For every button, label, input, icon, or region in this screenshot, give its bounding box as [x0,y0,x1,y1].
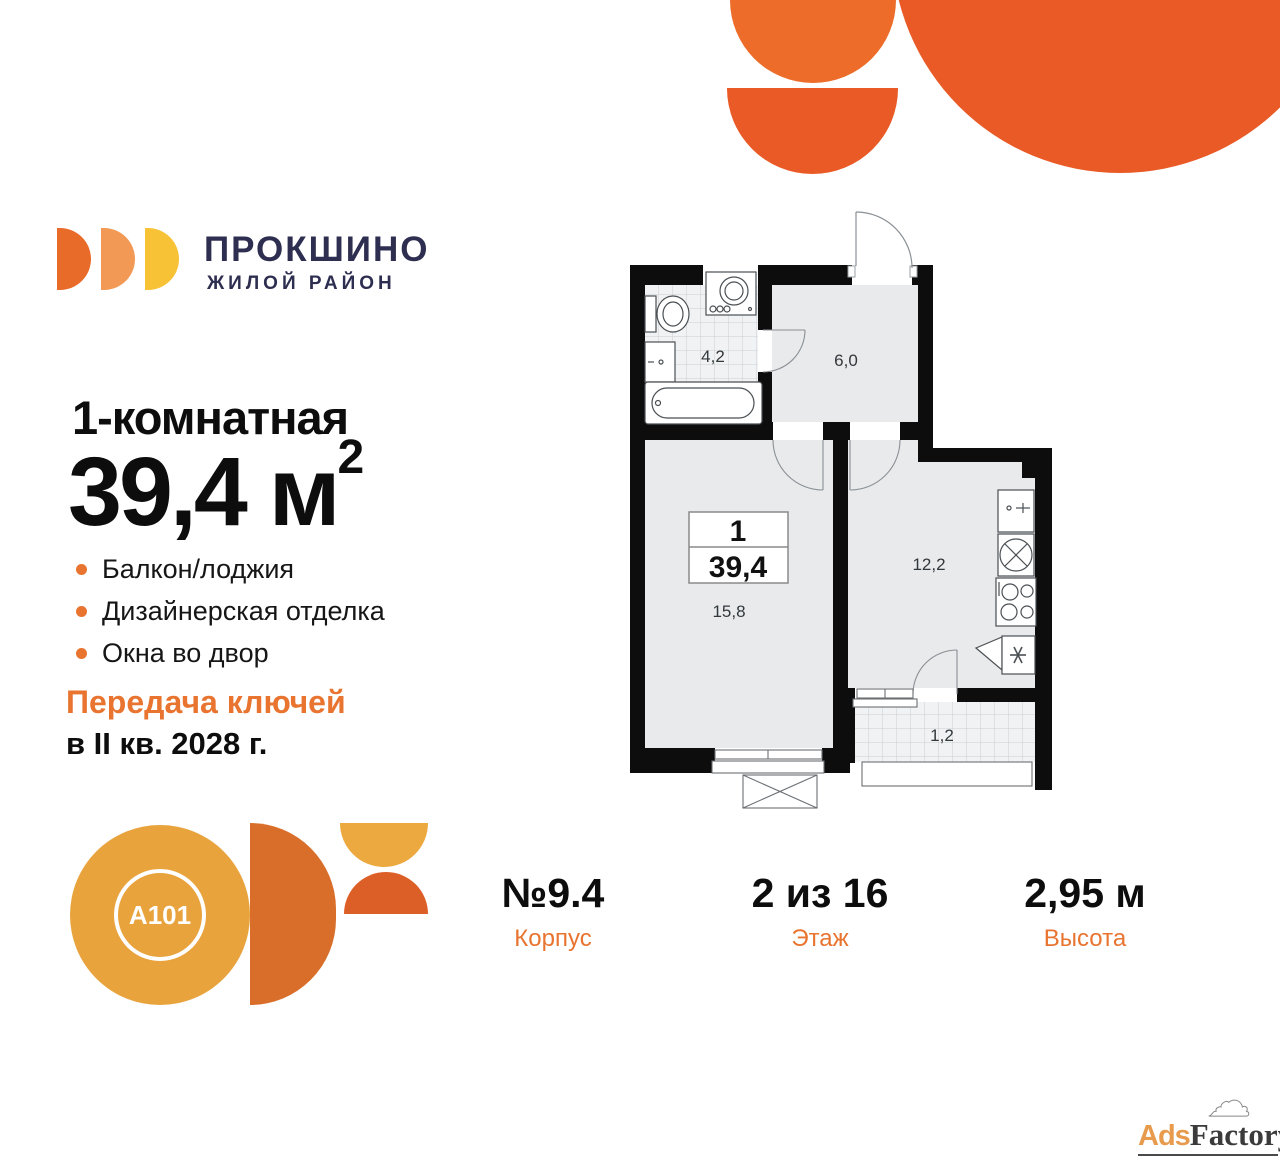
handover-line-2: в II кв. 2028 г. [66,726,267,762]
a101-dome-shape [344,872,428,914]
spec-floor-label: Этаж [710,925,930,953]
a101-bowl-shape [340,823,428,867]
logo-halfdisc-orange [57,228,91,290]
spec-floor-value: 2 из 16 [710,870,930,917]
feature-item: Балкон/лоджия [76,548,385,590]
spec-height: 2,95 м Высота [975,870,1195,953]
kitchen-sink [998,490,1034,532]
balcony-rail [862,762,1032,786]
flat-label-box: 1 39,4 [689,512,788,584]
area-superscript: 2 [338,431,365,484]
washing-machine [706,272,756,315]
living-room-window [712,750,824,773]
a101-logo-ring: A101 [114,869,206,961]
hallway-area: 6,0 [834,351,858,370]
watermark-ads: Ads [1138,1120,1190,1152]
toilet [645,296,689,332]
bathroom-area: 4,2 [701,347,725,366]
feature-bullet [76,648,87,659]
spec-building-value: №9.4 [443,870,663,917]
a101-logo-text: A101 [129,900,191,931]
deco-halfcircle-small-top [730,0,896,83]
deco-circle-large [892,0,1280,173]
balcony-window [853,689,917,707]
logo-halfdisc-yellow [145,228,179,290]
balcony-area: 1,2 [930,726,954,745]
stove [996,578,1036,626]
area-value: 39,4 м [68,437,338,546]
feature-list: Балкон/лоджия Дизайнерская отделка Окна … [76,548,385,674]
feature-label: Дизайнерская отделка [102,596,385,627]
spec-height-label: Высота [975,925,1195,953]
feature-bullet [76,606,87,617]
a101-halfdisc [250,823,336,1005]
air-conditioner-basket [743,775,817,808]
entrance-door [848,212,917,277]
deco-halfcircle-small-bottom [727,88,898,174]
spec-height-value: 2,95 м [975,870,1195,917]
spec-floor: 2 из 16 Этаж [710,870,930,953]
feature-label: Балкон/лоджия [102,554,294,585]
bathtub [645,382,762,424]
watermark: ☁ AdsFactory [1138,1090,1280,1156]
spec-building: №9.4 Корпус [443,870,663,953]
spec-building-label: Корпус [443,925,663,953]
brand-name: ПРОКШИНО [204,230,429,270]
floor-plan: 1 39,4 4,2 6,0 15,8 12,2 1,2 [600,195,1070,820]
sink-basin-symbol [998,534,1034,576]
flat-area: 39,4 [709,551,768,584]
living-room-area: 15,8 [712,602,745,621]
feature-bullet [76,564,87,575]
watermark-factory: Factory [1190,1117,1280,1152]
bathroom-sink [645,342,675,382]
flat-rooms-count: 1 [730,515,747,548]
watermark-text: AdsFactory [1138,1117,1278,1156]
kitchen-area: 12,2 [912,555,945,574]
feature-item: Окна во двор [76,632,385,674]
area-title: 39,4 м2 [68,436,364,548]
feature-label: Окна во двор [102,638,269,669]
handover-line-1: Передача ключей [66,684,346,721]
feature-item: Дизайнерская отделка [76,590,385,632]
brand-subtitle: ЖИЛОЙ РАЙОН [207,273,396,295]
logo-halfdisc-light-orange [101,228,135,290]
